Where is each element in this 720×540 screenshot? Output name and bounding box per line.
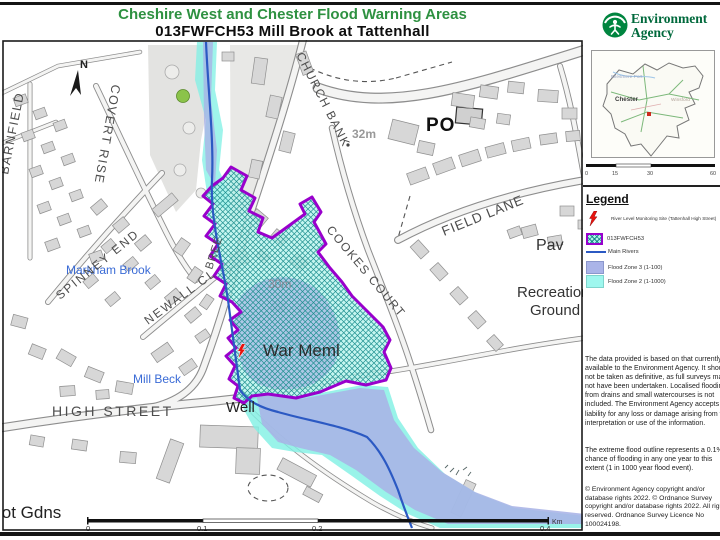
recreation-ground-label-2: Ground xyxy=(530,302,580,319)
location-marker xyxy=(647,112,651,116)
flood-warning-area-swatch xyxy=(586,233,603,245)
war-memorial-label: War Meml xyxy=(263,341,340,360)
flood-map-document: Cheshire West and Chester Flood Warning … xyxy=(0,0,720,540)
allotment-gardens-label: lot Gdns xyxy=(2,503,61,522)
legend-item-label: Flood Zone 3 (1-100) xyxy=(608,265,662,271)
agency-name-line2: Agency xyxy=(631,26,707,40)
tree-icon xyxy=(177,90,190,103)
legend-item-monitoring-site: River Level Monitoring Site (Tattenhall … xyxy=(586,211,716,226)
environment-agency-logo xyxy=(602,12,628,38)
spot-height-30-label: 30m xyxy=(268,277,291,291)
inset-scalebar: 0 15 30 60 xyxy=(585,160,719,178)
page-title: Cheshire West and Chester Flood Warning … xyxy=(0,7,585,40)
legend-item-flood-zone-2: Flood Zone 2 (1-1000) xyxy=(586,275,666,288)
inset-label-chester: Chester xyxy=(615,96,639,103)
flood-zone-2-swatch xyxy=(586,275,604,288)
legend-item-main-rivers: Main Rivers xyxy=(586,249,639,255)
inset-label-ellesmere-port: Ellesmere Port xyxy=(611,74,643,80)
recreation-ground-label-1: Recreation xyxy=(517,284,583,301)
well-label: Well xyxy=(226,399,255,416)
legend-item-flood-zone-3: Flood Zone 3 (1-100) xyxy=(586,261,662,274)
spot-height-32-label: 32m xyxy=(352,127,376,141)
bottom-border xyxy=(0,532,720,536)
street-label-high-street: HIGH STREET xyxy=(52,403,174,419)
legend-item-flood-warning-area: 013FWFCH53 xyxy=(586,233,644,245)
main-river-line-swatch xyxy=(586,251,606,253)
area-title: 013FWFCH53 Mill Brook at Tattenhall xyxy=(0,24,585,41)
lightning-bolt-icon xyxy=(586,211,604,226)
watercourse-label-mill-beck: Mill Beck xyxy=(133,372,182,386)
overview-inset-map: Ellesmere Port Chester Winsford xyxy=(591,50,715,158)
agency-name: Environment Agency xyxy=(631,12,707,40)
inset-scale-tick-2: 30 xyxy=(647,171,653,177)
top-border xyxy=(0,2,720,5)
pavilion-label: Pav xyxy=(536,237,564,254)
flood-zone-3-swatch xyxy=(586,261,604,274)
extreme-flood-note: The extreme flood outline represents a 0… xyxy=(585,446,720,473)
legend-item-label: Main Rivers xyxy=(608,249,639,255)
inset-scale-tick-0: 0 xyxy=(585,171,588,177)
north-label: N xyxy=(80,59,88,71)
legend-heading: Legend xyxy=(586,192,629,206)
legend-item-label: Flood Zone 2 (1-1000) xyxy=(608,279,666,285)
panel-divider xyxy=(583,185,720,187)
copyright-note: © Environment Agency copyright and/or da… xyxy=(585,486,720,529)
legend-item-label: River Level Monitoring Site (Tattenhall … xyxy=(611,216,716,221)
post-office-label: PO xyxy=(426,115,455,136)
region-title: Cheshire West and Chester Flood Warning … xyxy=(0,7,585,24)
inset-label-winsford: Winsford xyxy=(671,97,690,103)
main-map: N BARNFIELD COVERT RISE CHURCH BANK 32m … xyxy=(2,40,583,531)
scalebar-unit: Km xyxy=(552,519,563,526)
legend-item-label: 013FWFCH53 xyxy=(607,236,644,242)
agency-name-line1: Environment xyxy=(631,12,707,26)
disclaimer-note: The data provided is based on that curre… xyxy=(585,355,720,428)
inset-scale-tick-1: 15 xyxy=(612,171,618,177)
inset-scale-tick-3: 60 xyxy=(710,171,716,177)
